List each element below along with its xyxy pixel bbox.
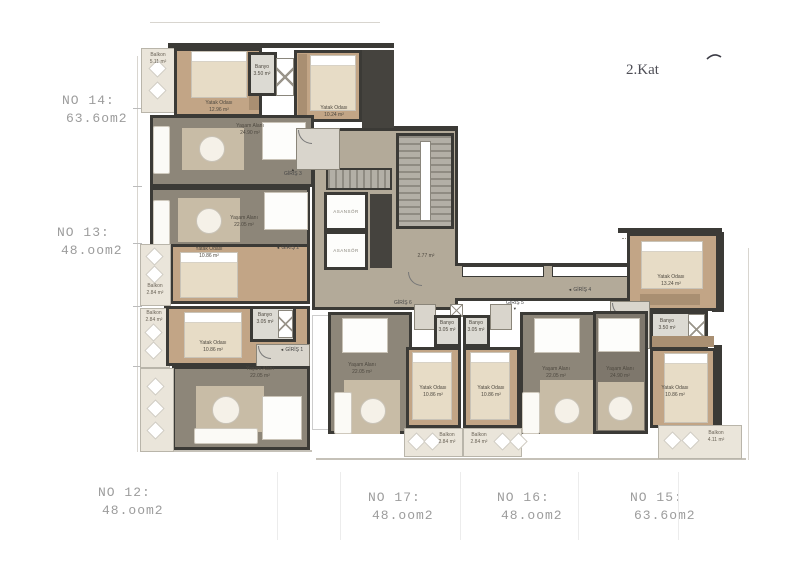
room-label-living-17: Yaşam Alanı 22.05 m² (330, 362, 394, 376)
unit-area: 63.6om2 (634, 507, 696, 525)
label-divider (578, 472, 579, 540)
room-label-living-16: Yaşam Alanı 22.05 m² (524, 366, 588, 380)
unit-number: NO 12: (98, 484, 164, 502)
round-table (554, 398, 580, 424)
room-label-bed1-14: Yatak Odası 12.96 m² (190, 100, 248, 114)
room-label-bed-12: Yatak Odası 10.86 m² (182, 340, 244, 354)
unit-number: NO 15: (630, 489, 696, 507)
room-label-banyo-16: Banyo 3.05 m² (461, 320, 491, 334)
wardrobe (652, 336, 714, 347)
entrance-giris-5: GİRİŞ 5 ▼ (506, 301, 524, 311)
entrance-giris-4: ◄ GİRİŞ 4 (568, 288, 591, 294)
shaft (370, 194, 392, 268)
unit-label-no13: NO 13: 48.oom2 (57, 224, 123, 259)
room-label-balcony-15: Balkon 4.11 m² (700, 430, 732, 444)
room-label-balcony-13: Balkon 2.84 m² (139, 283, 171, 297)
unit-label-no12: NO 12: 48.oom2 (98, 484, 164, 519)
unit-label-no14: NO 14: 63.6om2 (62, 92, 128, 127)
room-label-core-lobby: 2.77 m² (408, 253, 444, 260)
stair-railing (420, 141, 431, 221)
unit-number: NO 16: (497, 489, 563, 507)
unit-area: 63.6om2 (66, 110, 128, 128)
corridor-closet (462, 266, 544, 277)
sofa (153, 126, 170, 174)
dimension-line (150, 22, 380, 23)
arrow-left-icon: ◄ (280, 347, 284, 352)
dining-table (262, 396, 302, 440)
entrance-giris-1: ◄ GİRİŞ 1 (280, 348, 303, 354)
room-label-bed-17: Yatak Odası 10.86 m² (404, 385, 462, 399)
stair-flight-lower (326, 168, 392, 190)
unit-number: NO 14: (62, 92, 128, 110)
room-label-living-13: Yaşam Alanı 22.05 m² (212, 215, 276, 229)
entrance-giris-3: ▲ GİRİŞ 3 (284, 168, 302, 178)
unit-number: NO 17: (368, 489, 434, 507)
sofa (334, 392, 352, 434)
round-table (608, 396, 633, 421)
room-label-bed2-15: Yatak Odası 10.86 m² (646, 385, 704, 399)
room-label-living-15: Yaşam Alanı 24.90 m² (590, 366, 650, 380)
unit-label-no15: NO 15: 63.6om2 (630, 489, 696, 524)
room-label-bed1-15: Yatak Odası 13.24 m² (640, 274, 702, 288)
round-table (212, 396, 240, 424)
arrow-left-icon: ◄ (276, 245, 280, 250)
floor-plan-canvas: NO 14: 63.6om2 NO 13: 48.oom2 NO 12: 48.… (0, 0, 800, 565)
unit-area: 48.oom2 (372, 507, 434, 525)
unit-label-no17: NO 17: 48.oom2 (368, 489, 434, 524)
room-label-banyo-17: Banyo 3.05 m² (432, 320, 462, 334)
unit-number: NO 13: (57, 224, 123, 242)
bed (310, 55, 356, 111)
unit-area: 48.oom2 (102, 502, 164, 520)
dimension-line (748, 248, 749, 460)
room-label-balcony-14: Balkon 5.11 m² (142, 52, 174, 66)
arrow-down-icon: ▼ (506, 307, 524, 311)
label-divider (460, 472, 461, 540)
shower (278, 310, 293, 338)
dining-table (534, 318, 580, 353)
room-label-banyo-14: Banyo 3.50 m² (247, 64, 277, 78)
sofa (522, 392, 540, 434)
sofa (194, 428, 258, 444)
sofa (153, 200, 170, 248)
round-table (199, 136, 225, 162)
room-label-bed2-14: Yatak Odası 10.24 m² (306, 105, 362, 119)
elevator-1: ASANSÖR (324, 192, 368, 231)
dimension-tick (133, 306, 142, 307)
dimension-line (137, 56, 138, 452)
unit-area: 48.oom2 (61, 242, 123, 260)
utility-block (362, 50, 394, 128)
room-label-living-14: Yaşam Alanı 24.90 m² (218, 123, 282, 137)
dining-table (342, 318, 388, 353)
entrance-giris-2: ◄ GİRİŞ 2 (276, 246, 299, 252)
room-label-balcony-16: Balkon 2.84 m² (464, 432, 494, 446)
label-divider (340, 472, 341, 540)
arrow-down-icon: ▼ (394, 307, 412, 311)
shaft-no14 (276, 58, 294, 96)
room-label-bed-13: Yatak Odası 10.86 m² (178, 246, 240, 260)
entrance-giris-6: GİRİŞ 6 ▼ (394, 301, 412, 311)
floor-level-label: 2.Kat (626, 62, 659, 79)
elevator-2: ASANSÖR (324, 231, 368, 270)
arrow-left-icon: ◄ (568, 287, 572, 292)
label-divider (678, 472, 679, 540)
room-label-banyo-15: Banyo 3.50 m² (650, 318, 684, 332)
label-divider (277, 472, 278, 540)
unit-area: 48.oom2 (501, 507, 563, 525)
round-table (360, 398, 386, 424)
room-label-banyo-12: Banyo 3.05 m² (250, 312, 280, 326)
room-label-balcony-17: Balkon 2.84 m² (432, 432, 462, 446)
dining-table (598, 318, 640, 352)
bed (191, 51, 247, 98)
room-label-living-12: Yaşam Alanı 22.05 m² (228, 366, 292, 380)
corner-mark (706, 52, 722, 61)
dimension-tick (133, 186, 142, 187)
unit-label-no16: NO 16: 48.oom2 (497, 489, 563, 524)
room-label-bed-16: Yatak Odası 10.86 m² (462, 385, 520, 399)
